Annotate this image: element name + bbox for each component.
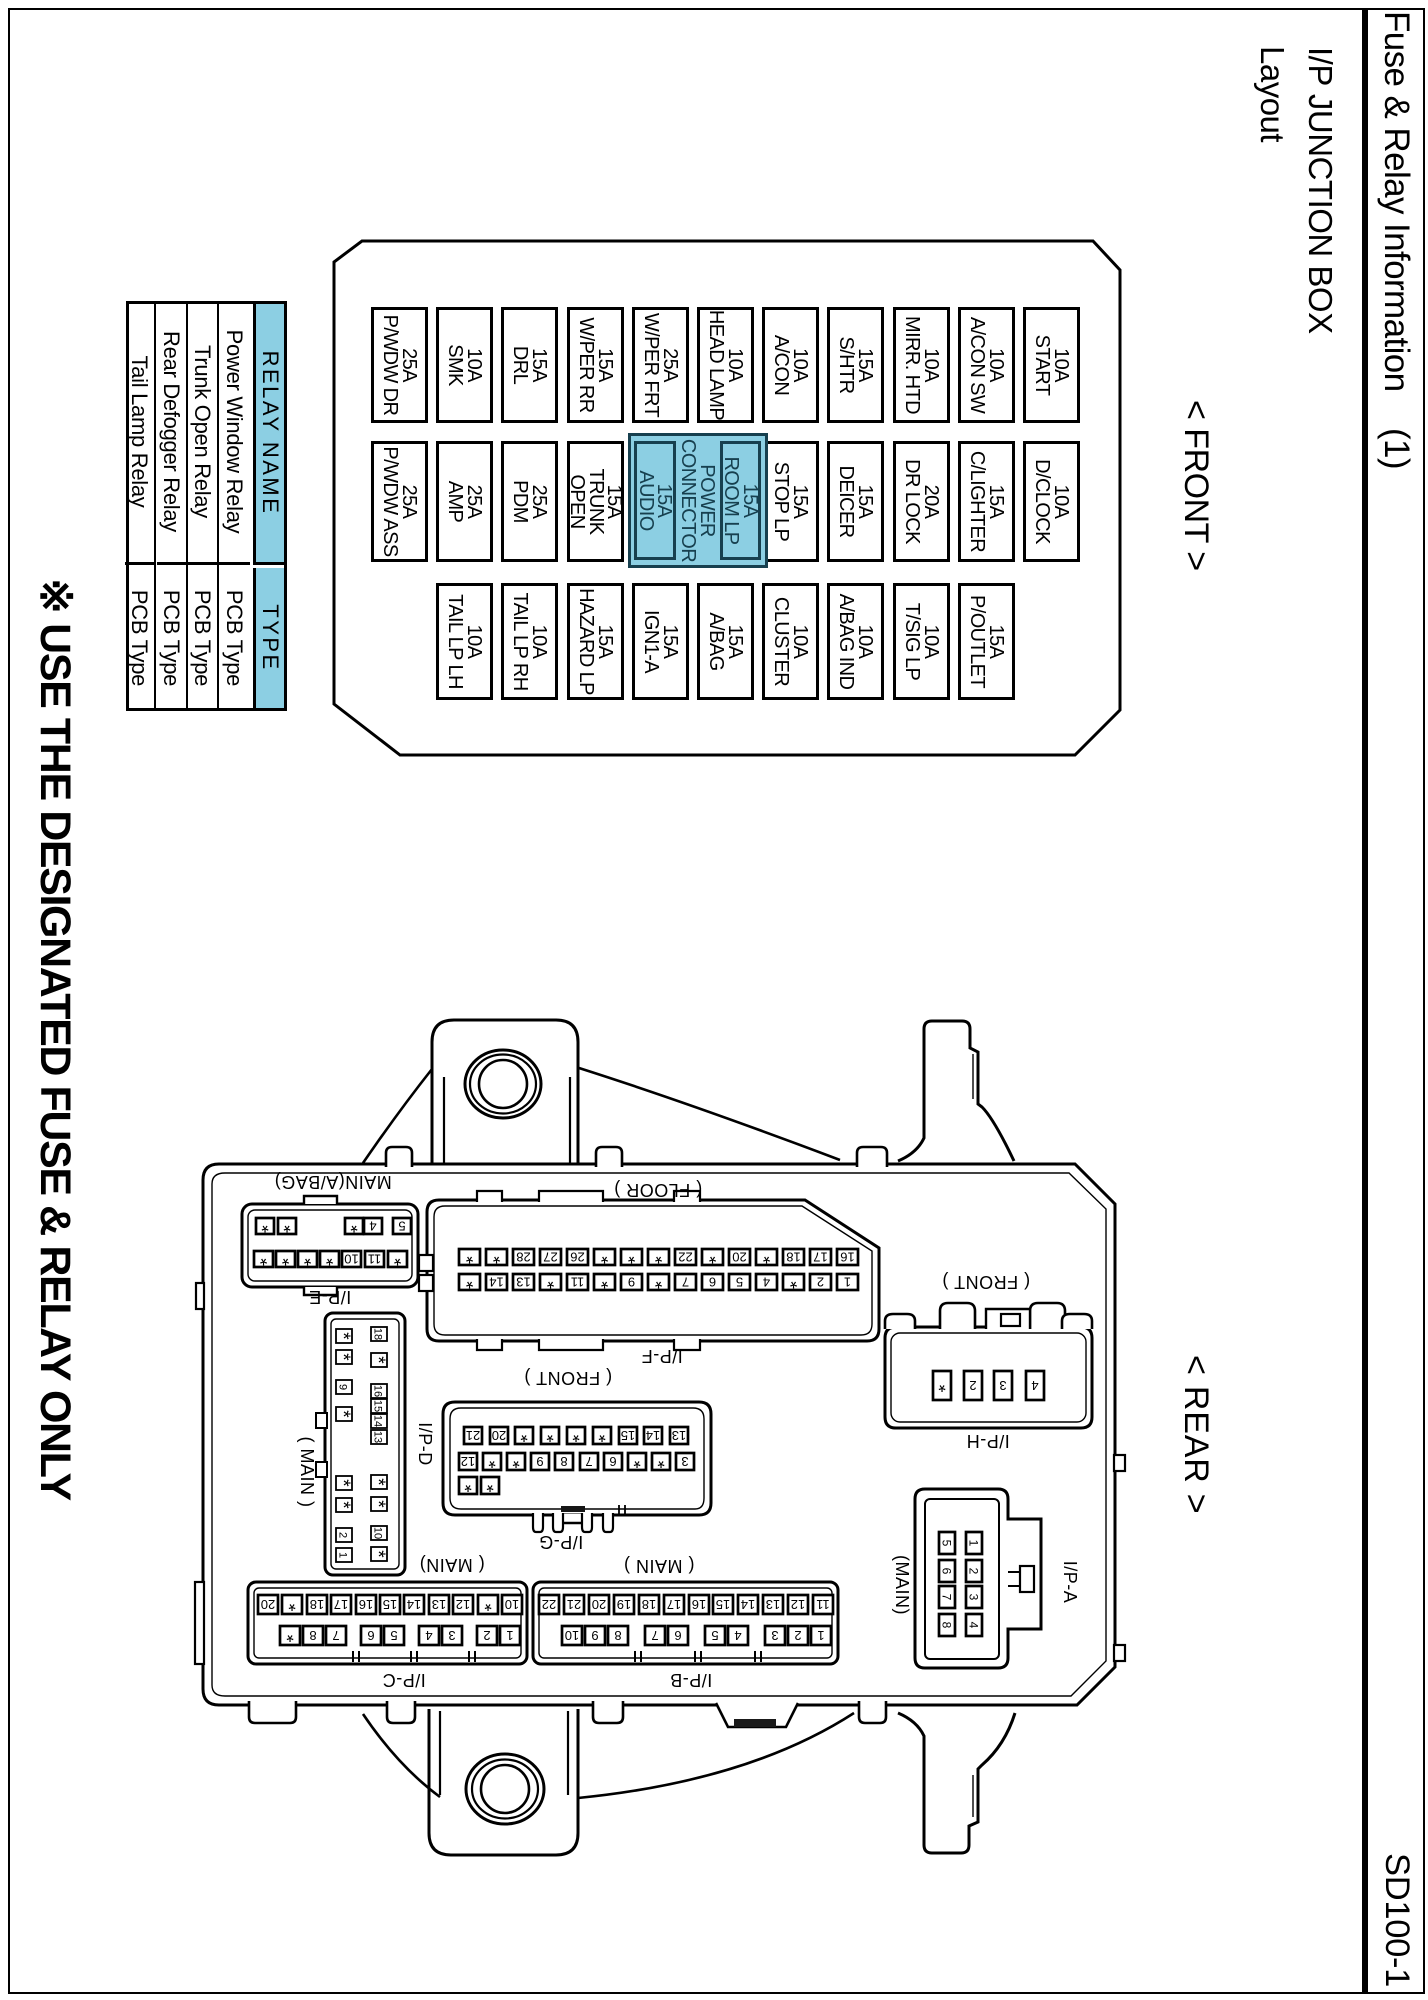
svg-text:11: 11	[368, 1252, 382, 1267]
svg-text:15: 15	[372, 1400, 384, 1412]
svg-text:*: *	[350, 1214, 358, 1235]
svg-text:6: 6	[709, 1275, 716, 1290]
svg-text:7: 7	[332, 1628, 339, 1643]
svg-text:16: 16	[840, 1250, 854, 1265]
svg-text:15: 15	[716, 1597, 730, 1612]
svg-text:2: 2	[969, 1378, 976, 1393]
svg-text:*: *	[488, 1450, 496, 1471]
svg-text:*: *	[789, 1270, 797, 1291]
svg-text:2: 2	[794, 1628, 801, 1643]
svg-text:I/P-F: I/P-F	[641, 1346, 683, 1366]
svg-text:*: *	[465, 1245, 473, 1266]
svg-text:*: *	[600, 1270, 608, 1291]
svg-text:20: 20	[732, 1250, 746, 1265]
svg-text:17: 17	[334, 1597, 348, 1612]
svg-text:20: 20	[592, 1597, 606, 1612]
svg-text:*: *	[633, 1450, 641, 1471]
svg-text:3: 3	[967, 1594, 981, 1601]
svg-text:7: 7	[651, 1628, 658, 1643]
svg-text:*: *	[486, 1474, 494, 1495]
svg-text:*: *	[332, 1332, 353, 1340]
svg-text:*: *	[762, 1245, 770, 1266]
svg-text:13: 13	[372, 1431, 384, 1443]
svg-text:*: *	[938, 1374, 946, 1395]
svg-text:6: 6	[940, 1568, 954, 1575]
svg-text:*: *	[393, 1247, 401, 1268]
svg-text:6: 6	[367, 1628, 374, 1643]
svg-text:*: *	[332, 1353, 353, 1361]
svg-text:*: *	[367, 1550, 388, 1558]
svg-text:*: *	[520, 1424, 528, 1445]
svg-text:10: 10	[372, 1527, 384, 1539]
svg-text:3: 3	[999, 1378, 1006, 1393]
svg-text:13: 13	[766, 1597, 780, 1612]
svg-text:13: 13	[432, 1597, 446, 1612]
svg-text:4: 4	[369, 1219, 376, 1234]
svg-text:1: 1	[337, 1552, 349, 1558]
svg-text:8: 8	[614, 1628, 621, 1643]
svg-text:( FLOOR ): ( FLOOR )	[614, 1180, 703, 1200]
svg-text:I/P-A: I/P-A	[1060, 1561, 1080, 1604]
svg-text:*: *	[546, 1424, 554, 1445]
svg-text:22: 22	[678, 1250, 692, 1265]
svg-text:15: 15	[383, 1597, 397, 1612]
svg-text:2: 2	[967, 1568, 981, 1575]
svg-text:2: 2	[817, 1275, 824, 1290]
svg-text:( MAIN): ( MAIN)	[419, 1555, 485, 1575]
svg-text:5: 5	[711, 1628, 718, 1643]
svg-text:( MAIN ): ( MAIN )	[624, 1556, 695, 1576]
svg-text:16: 16	[372, 1385, 384, 1397]
svg-text:1: 1	[967, 1540, 981, 1547]
svg-text:14: 14	[489, 1275, 503, 1290]
svg-text:*: *	[464, 1474, 472, 1495]
svg-text:22: 22	[542, 1597, 556, 1612]
svg-text:I/P-B: I/P-B	[670, 1670, 713, 1690]
svg-text:7: 7	[585, 1454, 592, 1469]
svg-text:( FRONT ): ( FRONT )	[942, 1272, 1030, 1292]
svg-text:*: *	[512, 1450, 520, 1471]
svg-text:3: 3	[771, 1628, 778, 1643]
svg-text:7: 7	[940, 1594, 954, 1601]
svg-text:18: 18	[786, 1250, 800, 1265]
svg-text:9: 9	[536, 1454, 543, 1469]
svg-text:*: *	[261, 1214, 269, 1235]
svg-text:5: 5	[940, 1540, 954, 1547]
svg-text:16: 16	[359, 1597, 373, 1612]
svg-text:13: 13	[516, 1275, 530, 1290]
svg-text:15: 15	[621, 1428, 635, 1443]
svg-text:7: 7	[682, 1275, 689, 1290]
svg-text:*: *	[332, 1479, 353, 1487]
svg-text:18: 18	[372, 1328, 384, 1340]
svg-text:5: 5	[398, 1219, 405, 1234]
svg-text:9: 9	[591, 1628, 598, 1643]
svg-text:18: 18	[642, 1597, 656, 1612]
svg-text:*: *	[259, 1247, 267, 1268]
svg-text:*: *	[281, 1247, 289, 1268]
svg-text:5: 5	[736, 1275, 743, 1290]
svg-text:14: 14	[646, 1428, 660, 1443]
svg-text:9: 9	[628, 1275, 635, 1290]
svg-text:9: 9	[337, 1384, 349, 1390]
svg-text:*: *	[600, 1245, 608, 1266]
svg-text:1: 1	[844, 1275, 851, 1290]
svg-text:*: *	[303, 1247, 311, 1268]
svg-text:26: 26	[570, 1250, 584, 1265]
svg-text:*: *	[492, 1245, 500, 1266]
svg-text:14: 14	[741, 1597, 755, 1612]
svg-text:10: 10	[565, 1628, 579, 1643]
svg-text:14: 14	[407, 1597, 421, 1612]
svg-text:*: *	[288, 1593, 296, 1614]
svg-text:*: *	[657, 1450, 665, 1471]
svg-text:19: 19	[617, 1597, 631, 1612]
svg-text:6: 6	[609, 1454, 616, 1469]
svg-text:8: 8	[560, 1454, 567, 1469]
svg-text:12: 12	[791, 1597, 805, 1612]
svg-text:20: 20	[261, 1597, 275, 1612]
svg-text:16: 16	[692, 1597, 706, 1612]
svg-text:*: *	[465, 1270, 473, 1291]
svg-text:21: 21	[567, 1597, 581, 1612]
svg-text:18: 18	[310, 1597, 324, 1612]
svg-text:21: 21	[466, 1428, 480, 1443]
svg-text:4: 4	[967, 1622, 981, 1629]
svg-text:4: 4	[734, 1628, 741, 1643]
svg-text:*: *	[367, 1500, 388, 1508]
svg-text:I/P-E: I/P-E	[309, 1287, 352, 1307]
svg-text:*: *	[484, 1593, 492, 1614]
svg-text:4: 4	[425, 1628, 432, 1643]
svg-text:4: 4	[1031, 1378, 1038, 1393]
svg-text:4: 4	[763, 1275, 770, 1290]
svg-text:*: *	[332, 1410, 353, 1418]
svg-text:17: 17	[813, 1250, 827, 1265]
svg-text:10: 10	[505, 1597, 519, 1612]
svg-text:1: 1	[506, 1628, 513, 1643]
svg-text:13: 13	[672, 1428, 686, 1443]
svg-text:14: 14	[372, 1415, 384, 1427]
svg-text:*: *	[332, 1501, 353, 1509]
svg-text:11: 11	[571, 1275, 585, 1290]
svg-text:8: 8	[940, 1622, 954, 1629]
svg-text:12: 12	[456, 1597, 470, 1612]
svg-text:5: 5	[390, 1628, 397, 1643]
svg-text:I/P-C: I/P-C	[382, 1670, 426, 1690]
svg-text:*: *	[325, 1247, 333, 1268]
svg-text:I/P-G: I/P-G	[539, 1532, 584, 1552]
svg-text:27: 27	[543, 1250, 557, 1265]
svg-text:*: *	[546, 1270, 554, 1291]
svg-text:I/P-D: I/P-D	[415, 1422, 435, 1466]
svg-text:2: 2	[483, 1628, 490, 1643]
svg-text:*: *	[367, 1478, 388, 1486]
svg-text:20: 20	[492, 1428, 506, 1443]
svg-text:17: 17	[667, 1597, 681, 1612]
svg-text:*: *	[654, 1245, 662, 1266]
svg-text:( FRONT ): ( FRONT )	[524, 1368, 612, 1388]
svg-text:*: *	[627, 1245, 635, 1266]
svg-text:(MAIN): (MAIN)	[892, 1555, 912, 1615]
svg-text:*: *	[598, 1424, 606, 1445]
svg-text:1: 1	[817, 1628, 824, 1643]
svg-text:*: *	[286, 1624, 294, 1645]
svg-text:2: 2	[337, 1532, 349, 1538]
svg-text:3: 3	[681, 1454, 688, 1469]
svg-text:*: *	[708, 1245, 716, 1266]
svg-text:*: *	[572, 1424, 580, 1445]
svg-text:*: *	[283, 1214, 291, 1235]
svg-text:( MAIN ): ( MAIN )	[297, 1437, 317, 1508]
svg-text:*: *	[367, 1356, 388, 1364]
svg-text:8: 8	[309, 1628, 316, 1643]
svg-text:10: 10	[344, 1252, 358, 1267]
svg-text:6: 6	[674, 1628, 681, 1643]
svg-text:MAIN(A/BAG): MAIN(A/BAG)	[274, 1172, 392, 1192]
svg-text:I/P-H: I/P-H	[966, 1431, 1010, 1451]
svg-text:11: 11	[816, 1597, 830, 1612]
svg-text:3: 3	[448, 1628, 455, 1643]
svg-text:*: *	[654, 1270, 662, 1291]
svg-text:28: 28	[516, 1250, 530, 1265]
svg-text:12: 12	[461, 1454, 475, 1469]
